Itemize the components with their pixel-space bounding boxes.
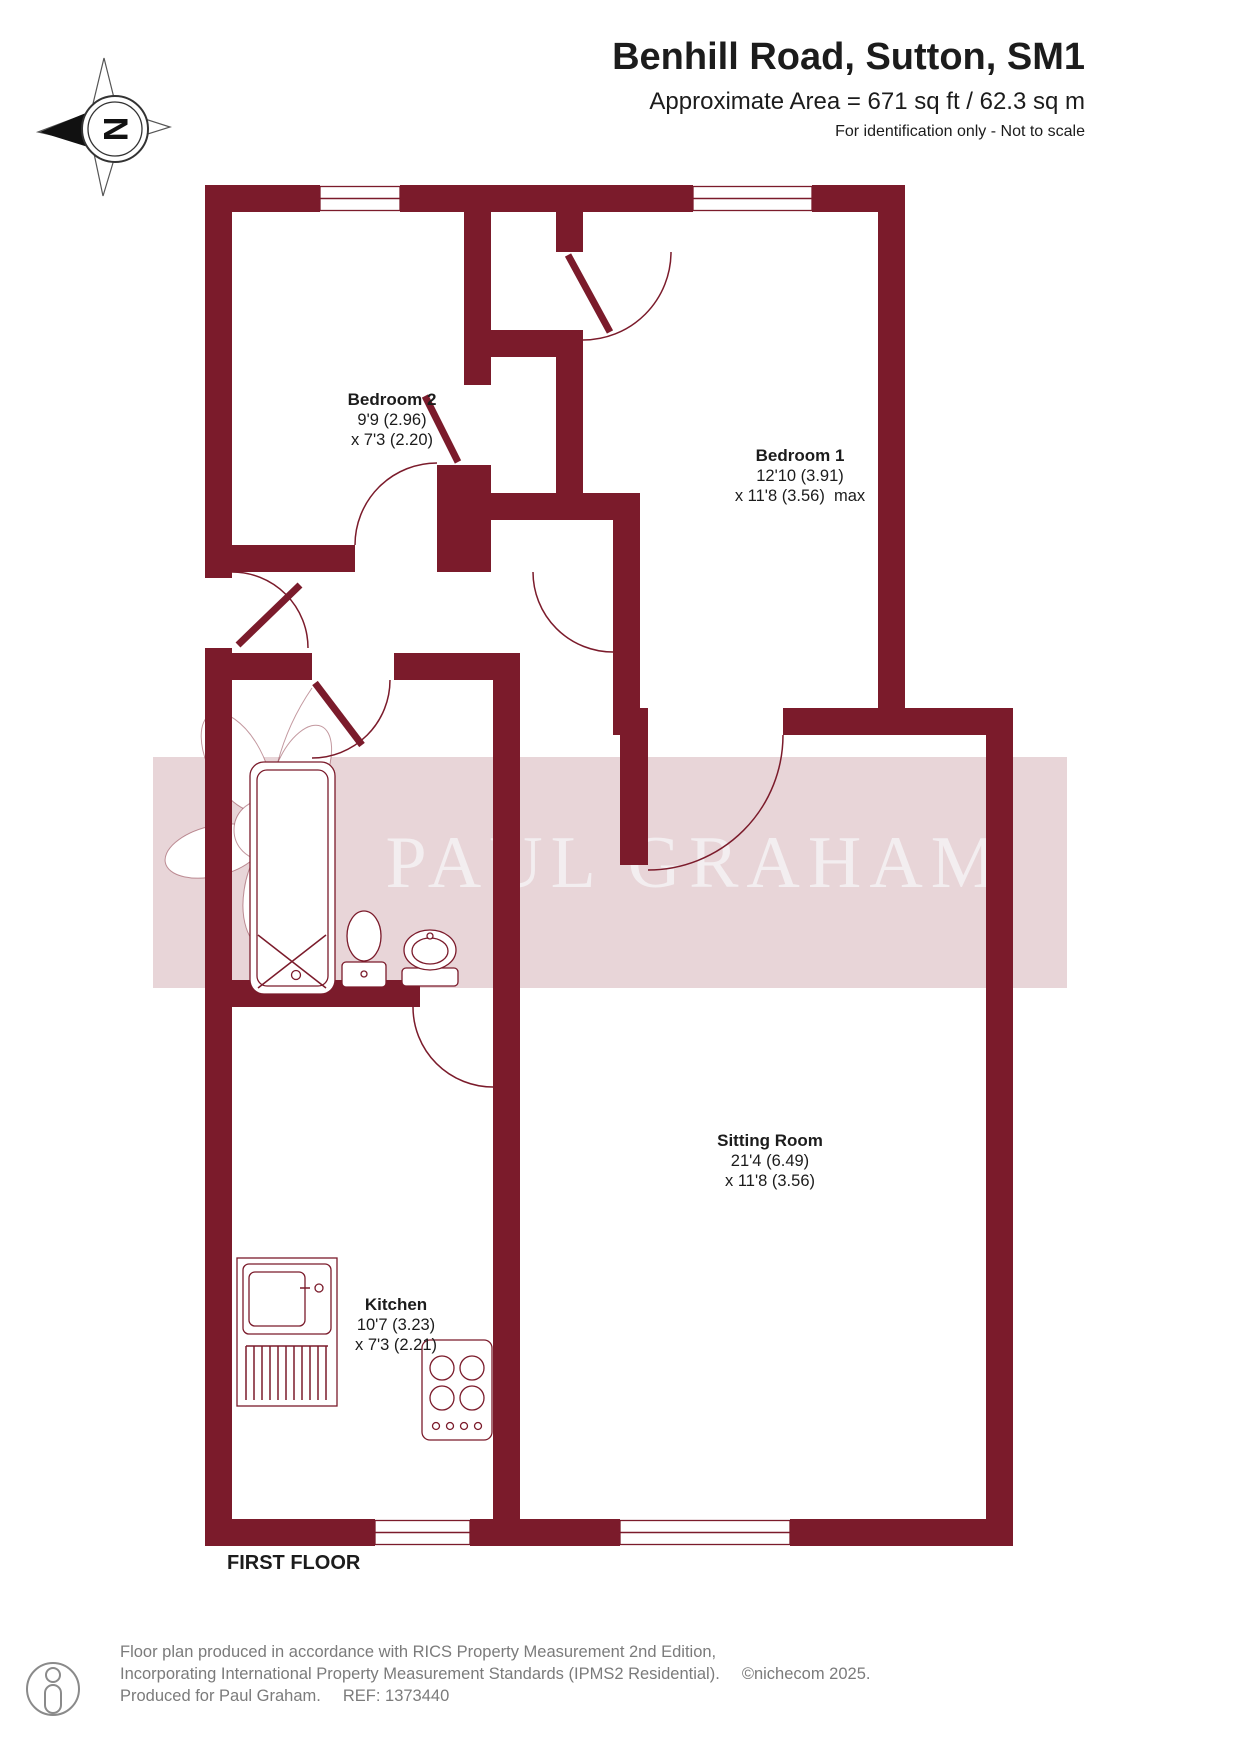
entrance-door-leaf (238, 585, 300, 645)
compass-icon: N (38, 58, 170, 196)
kitchen-sink-icon (237, 1258, 337, 1406)
room-dimension: x 7'3 (2.21) (355, 1335, 437, 1355)
room-name: Bedroom 2 (348, 390, 437, 410)
room-dimension: x 7'3 (2.20) (348, 430, 437, 450)
room-label-bedroom1: Bedroom 1 12'10 (3.91) x 11'8 (3.56) max (735, 446, 865, 506)
floorplan-drawing: N (0, 0, 1241, 1755)
room-dimension: x 11'8 (3.56) max (735, 486, 865, 506)
footer-line1: Floor plan produced in accordance with R… (120, 1641, 870, 1663)
window-icon (375, 1521, 470, 1545)
footer-line2: Incorporating International Property Mea… (120, 1663, 870, 1685)
toilet-icon (342, 911, 386, 987)
room-dimension: 10'7 (3.23) (355, 1315, 437, 1335)
footer-produced-for: Produced for Paul Graham. (120, 1687, 321, 1705)
cupboard2-door-leaf (568, 255, 610, 332)
footer-line3: Produced for Paul Graham.REF: 1373440 (120, 1685, 870, 1707)
footer-ref: REF: 1373440 (343, 1687, 449, 1705)
person-icon (27, 1663, 79, 1715)
window-icon (320, 187, 400, 211)
window-icon (620, 1521, 790, 1545)
room-label-kitchen: Kitchen 10'7 (3.23) x 7'3 (2.21) (355, 1295, 437, 1355)
room-dimension: 9'9 (2.96) (348, 410, 437, 430)
room-name: Bedroom 1 (735, 446, 865, 466)
room-dimension: 21'4 (6.49) (717, 1151, 823, 1171)
bathroom-fixtures (250, 762, 458, 994)
kitchen-door-arc (413, 1007, 493, 1087)
room-dimension: 12'10 (3.91) (735, 466, 865, 486)
room-name: Kitchen (355, 1295, 437, 1315)
floorplan-page: Benhill Road, Sutton, SM1 Approximate Ar… (0, 0, 1241, 1755)
footer-copyright: ©nichecom 2025. (742, 1665, 871, 1683)
sitting-room-door-arc (648, 735, 783, 870)
hob-icon (422, 1340, 492, 1440)
bedroom2-door-arc (355, 463, 437, 545)
cupboard-door-arc (583, 252, 671, 340)
room-label-bedroom2: Bedroom 2 9'9 (2.96) x 7'3 (2.20) (348, 390, 437, 450)
hall-door-arc (533, 572, 613, 652)
bathtub-icon (250, 762, 335, 994)
floor-label: FIRST FLOOR (227, 1552, 360, 1575)
room-dimension: x 11'8 (3.56) (717, 1171, 823, 1191)
compass-north-letter: N (96, 117, 134, 142)
footer: Floor plan produced in accordance with R… (120, 1641, 870, 1707)
room-label-sitting-room: Sitting Room 21'4 (6.49) x 11'8 (3.56) (717, 1131, 823, 1191)
footer-line2-text: Incorporating International Property Mea… (120, 1665, 720, 1683)
basin-icon (402, 930, 458, 986)
room-name: Sitting Room (717, 1131, 823, 1151)
window-icon (693, 187, 812, 211)
